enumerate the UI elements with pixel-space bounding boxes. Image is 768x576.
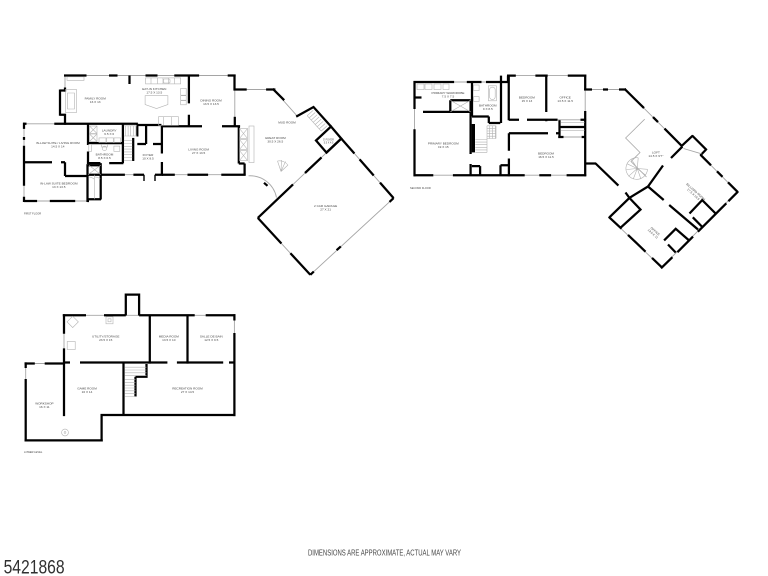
svg-text:7.5 X 7.5: 7.5 X 7.5	[442, 95, 455, 99]
svg-text:17.5 X 13.5: 17.5 X 13.5	[146, 90, 162, 94]
svg-text:14.5 X 14: 14.5 X 14	[51, 145, 65, 149]
svg-text:15 X 13: 15 X 13	[522, 99, 533, 103]
svg-text:5421868: 5421868	[4, 557, 65, 576]
svg-text:27 X 21: 27 X 21	[320, 207, 331, 211]
svg-text:13.5 X 10: 13.5 X 10	[162, 338, 176, 342]
svg-text:DIMENSIONS ARE APPROXIMATE, AC: DIMENSIONS ARE APPROXIMATE, ACTUAL MAY V…	[308, 549, 462, 558]
svg-text:SECOND FLOOR: SECOND FLOOR	[410, 186, 431, 190]
svg-text:16 X 14: 16 X 14	[82, 390, 93, 394]
svg-text:16 X 13: 16 X 13	[90, 100, 101, 104]
svg-text:23.5 X 15: 23.5 X 15	[99, 338, 113, 342]
svg-text:13 X 13.5: 13 X 13.5	[52, 185, 66, 189]
svg-text:5.5 X 4.5: 5.5 X 4.5	[324, 142, 334, 145]
svg-text:FIRST FLOOR: FIRST FLOOR	[24, 212, 41, 216]
svg-text:27 X 13.5: 27 X 13.5	[192, 151, 206, 155]
svg-text:13.5 X 11.5: 13.5 X 11.5	[557, 99, 573, 103]
svg-text:27 X 14.5: 27 X 14.5	[181, 390, 195, 394]
svg-text:19 X 15: 19 X 15	[438, 145, 449, 149]
svg-text:30.5 X 26.5: 30.5 X 26.5	[267, 140, 283, 144]
svg-text:16.5 X 11.5: 16.5 X 11.5	[538, 155, 554, 159]
svg-text:14.5 X 9'7": 14.5 X 9'7"	[648, 154, 663, 158]
svg-text:10 X 8.5: 10 X 8.5	[142, 157, 154, 161]
svg-text:13.5 X 13.5: 13.5 X 13.5	[203, 102, 219, 106]
svg-text:LOWER LEVEL: LOWER LEVEL	[24, 450, 43, 454]
svg-text:8.5 X 6.5: 8.5 X 6.5	[98, 156, 111, 160]
svg-text:9 X 8.5: 9 X 8.5	[483, 107, 493, 111]
svg-text:MUD ROOM: MUD ROOM	[278, 121, 296, 125]
svg-text:6.5 X 6: 6.5 X 6	[104, 132, 114, 136]
svg-text:16 X 11: 16 X 11	[39, 405, 50, 409]
svg-text:12.5 X 9.5: 12.5 X 9.5	[204, 338, 218, 342]
